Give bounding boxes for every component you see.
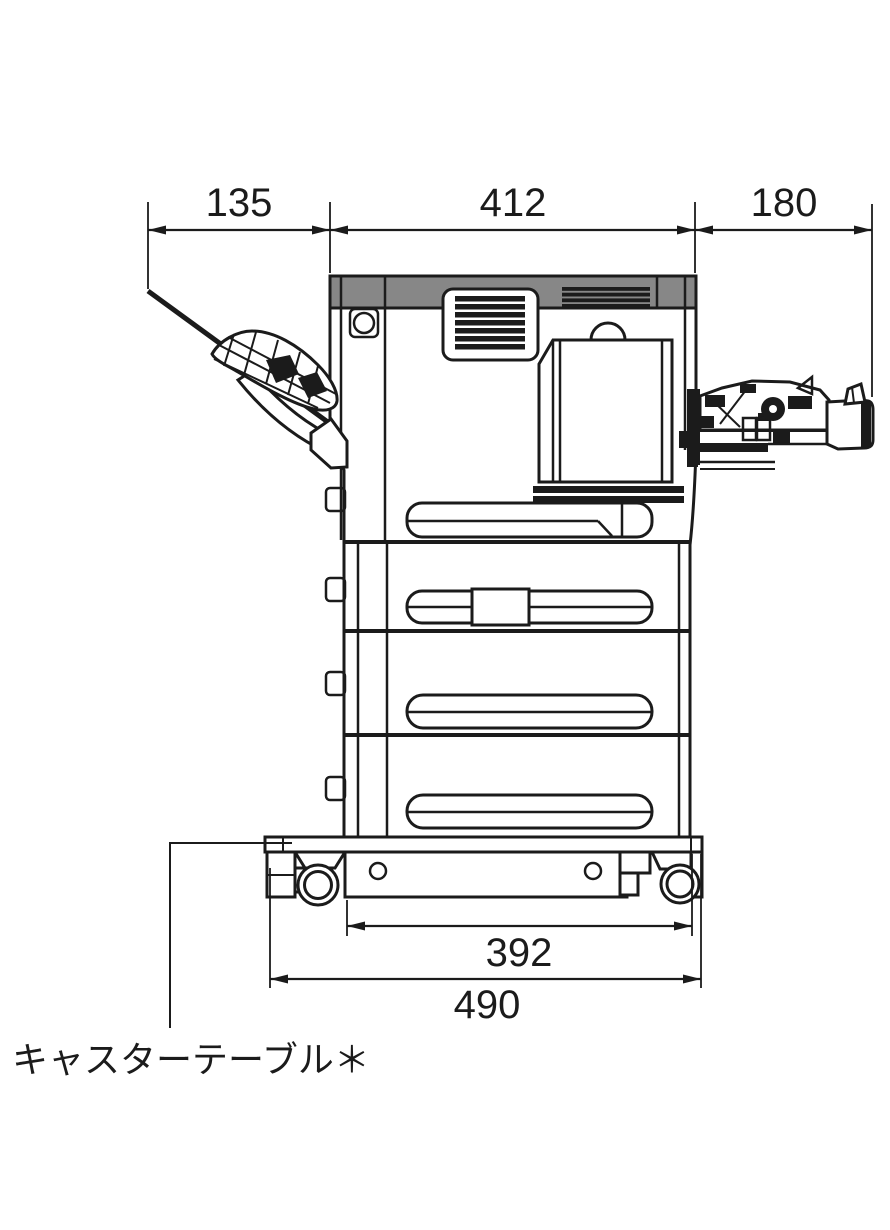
vent-grille-center — [443, 289, 538, 360]
caster-left — [267, 852, 345, 905]
dimension-label-180: 180 — [751, 181, 818, 225]
toner-unit — [539, 323, 672, 482]
output-tray-assembly — [148, 291, 347, 468]
manual-feed-assembly — [679, 377, 873, 469]
dimension-label-392: 392 — [486, 931, 553, 975]
tray-handle-3 — [407, 695, 652, 728]
dimension-label-412: 412 — [480, 181, 547, 225]
dimension-label-490: 490 — [454, 983, 521, 1027]
tray-handle-2 — [407, 589, 652, 625]
dimension-392: 392 — [347, 926, 692, 975]
feed-tray-flag — [845, 384, 865, 404]
tray-handle-4 — [407, 795, 652, 828]
dimension-135: 135 — [148, 181, 330, 230]
diagram-page: 135 412 180 392 490 キャスターテーブル＊ — [0, 0, 890, 1230]
caster-table — [265, 837, 702, 905]
dimension-label-135: 135 — [206, 181, 273, 225]
dimension-180: 180 — [695, 181, 872, 230]
dimension-412: 412 — [330, 181, 695, 230]
caster-table-label: キャスターテーブル＊ — [12, 1039, 370, 1080]
tray-handle-1 — [407, 503, 652, 537]
caster-table-plate — [265, 837, 702, 852]
dimension-490: 490 — [270, 979, 701, 1027]
feed-arm-bar — [700, 443, 768, 452]
printer-body — [326, 276, 696, 837]
printer-dimension-diagram: 135 412 180 392 490 キャスターテーブル＊ — [0, 0, 890, 1230]
caster-right — [620, 852, 702, 903]
